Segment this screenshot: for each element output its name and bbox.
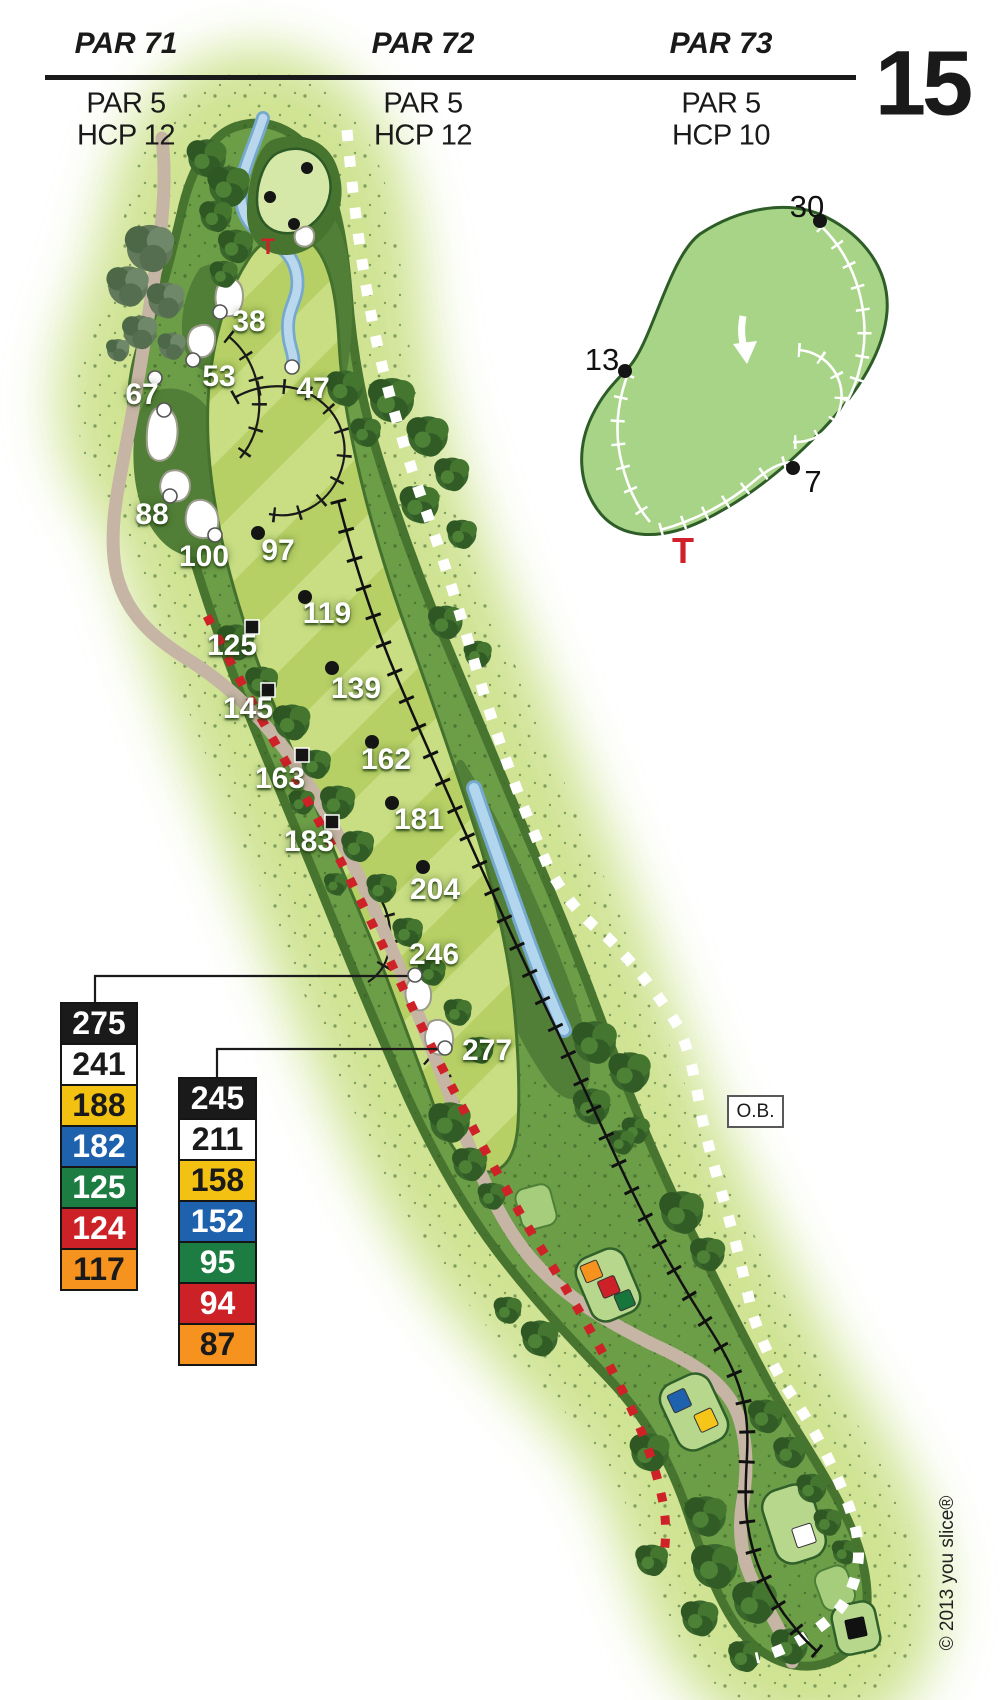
distance-label: 97 [261,534,294,568]
header: PAR 71 PAR 72 PAR 73 PAR 5 PAR 5 PAR 5 H… [0,0,1000,160]
distance-label: 100 [179,540,229,574]
green-depth-front: 7 [804,464,821,500]
course-map [0,0,1000,1700]
yardage-row-green: 125 [60,1166,138,1209]
course-par-73: PAR 73 [670,27,773,61]
distance-label: 67 [125,378,158,412]
yardage-value: 182 [72,1128,125,1165]
yardage-value: 87 [200,1326,236,1363]
distance-label: 204 [410,873,460,907]
yardage-value: 188 [72,1087,125,1124]
course-par-71: PAR 71 [75,27,178,61]
yardage-row-orange: 87 [178,1323,257,1366]
yardage-row-yellow: 188 [60,1084,138,1127]
pin-position-dot [264,191,276,203]
distance-label: 163 [255,762,305,796]
yardage-row-white: 211 [178,1118,257,1161]
yardage-value: 94 [200,1285,236,1322]
distance-label: 47 [296,372,329,406]
distance-label: 277 [462,1034,512,1068]
yardage-value: 95 [200,1244,236,1281]
out-of-bounds-label: O.B. [727,1095,784,1128]
yardage-value: 275 [72,1005,125,1042]
yardage-row-white: 241 [60,1043,138,1086]
yardage-value: 124 [72,1210,125,1247]
depth-dot-front [786,461,800,475]
pin-position-dot [301,162,313,174]
yardage-row-red: 94 [178,1282,257,1325]
distance-label: 53 [202,360,235,394]
green-depth-left: 13 [585,342,619,378]
green-detail-inset [582,207,888,534]
yardage-row-black: 245 [178,1077,257,1120]
depth-dot-left [618,364,632,378]
yardage-table-right: 245 211 158 152 95 94 87 [178,1077,257,1366]
yardage-row-blue: 152 [178,1200,257,1243]
yardage-value: 158 [191,1162,244,1199]
distance-label: 246 [409,938,459,972]
hole-par-col2: PAR 5 [383,88,462,121]
green-depth-back: 30 [790,189,824,225]
golf-hole-page: PAR 71 PAR 72 PAR 73 PAR 5 PAR 5 PAR 5 H… [0,0,1000,1700]
yardage-row-black: 275 [60,1002,138,1045]
yardage-row-orange: 117 [60,1248,138,1291]
distance-label: 125 [207,629,257,663]
header-rule [45,75,856,80]
pin-position-dot [288,218,300,230]
distance-label: 139 [331,672,381,706]
yardage-row-yellow: 158 [178,1159,257,1202]
distance-label: 38 [232,305,265,339]
handicap-col2: HCP 12 [374,120,472,153]
yardage-table-left: 275 241 188 182 125 124 117 [60,1002,138,1291]
yardage-row-green: 95 [178,1241,257,1284]
handicap-col1: HCP 12 [77,120,175,153]
copyright-notice: © 2013 you slice® [937,1496,959,1651]
distance-label: 145 [223,692,273,726]
distance-label: 119 [303,597,351,631]
yardage-value: 117 [73,1251,125,1288]
hole-par-col3: PAR 5 [681,88,760,121]
handicap-col3: HCP 10 [672,120,770,153]
distance-label: 162 [361,743,411,777]
distance-label: 183 [284,825,334,859]
tee-symbol-hole: T [261,234,274,260]
yardage-row-red: 124 [60,1207,138,1250]
yardage-value: 245 [191,1080,244,1117]
tee-symbol-inset: T [672,530,694,572]
yardage-value: 211 [192,1121,244,1158]
hole-par-col1: PAR 5 [86,88,165,121]
yardage-value: 152 [191,1203,244,1240]
distance-label: 181 [394,803,444,837]
distance-label: 88 [135,498,168,532]
black-tee-marker [844,1616,868,1640]
hole-number: 15 [875,32,969,137]
yardage-row-blue: 182 [60,1125,138,1168]
yardage-value: 241 [72,1046,125,1083]
course-par-72: PAR 72 [372,27,475,61]
yardage-value: 125 [72,1169,125,1206]
